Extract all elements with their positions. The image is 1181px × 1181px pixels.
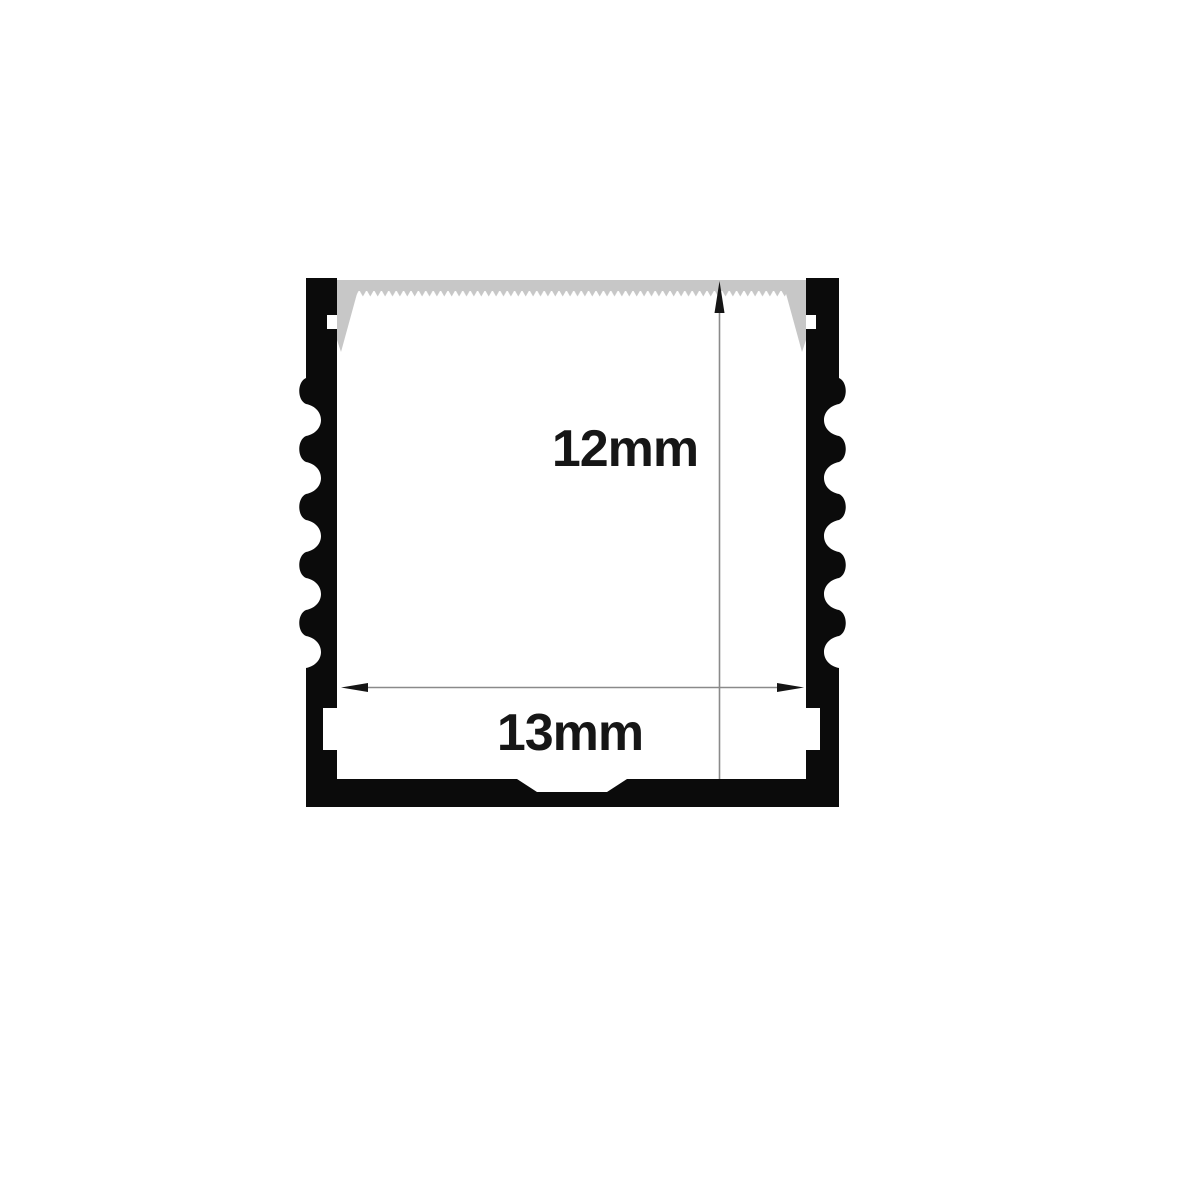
height-dimension-label: 12mm (552, 420, 698, 478)
diffuser-strip (337, 280, 806, 291)
diffuser-teeth (337, 290, 806, 297)
background (0, 0, 1181, 1181)
width-dimension-label: 13mm (497, 704, 643, 762)
diagram-canvas: 12mm 13mm (0, 0, 1181, 1181)
profile-cross-section-diagram: 12mm 13mm (0, 0, 1181, 1181)
